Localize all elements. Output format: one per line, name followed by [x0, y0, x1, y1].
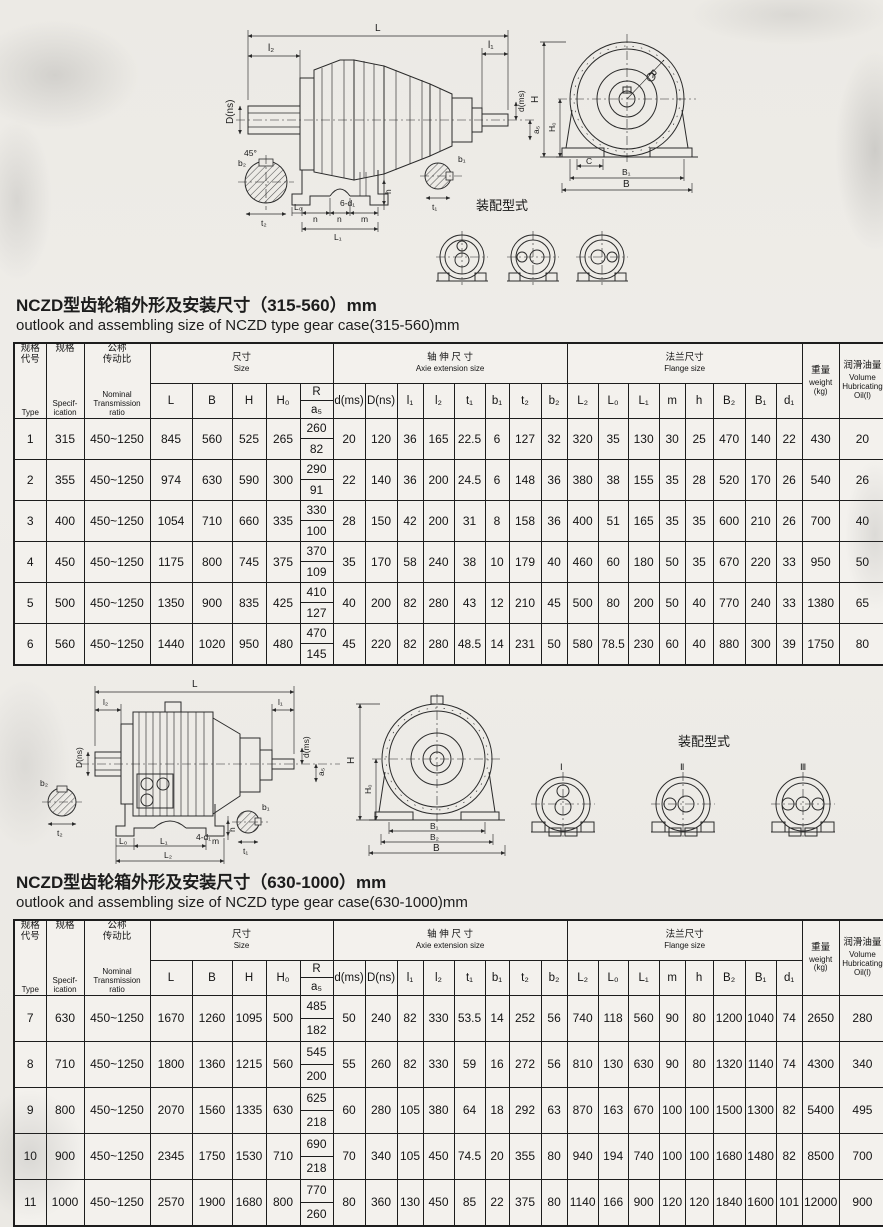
- cell-B1: 300: [745, 623, 776, 665]
- cell-L2: 320: [567, 418, 598, 459]
- dim-n: n: [313, 214, 318, 224]
- cell-B1: 240: [745, 582, 776, 623]
- cell-a5: 91: [301, 480, 333, 500]
- col-spec-header: 规格Specif- ication: [46, 920, 84, 996]
- group-axle-header-en: Axie extension size: [334, 365, 567, 374]
- dim-l2: l₂: [103, 697, 108, 707]
- cell-spec: 450: [46, 541, 84, 582]
- output-shaft-section: b₁ t₁: [232, 802, 270, 856]
- header-group-row: 规格 代号Type规格Specif- ication公称 传动比Nominal …: [14, 920, 883, 961]
- col-symbol-header: m: [659, 383, 685, 418]
- col-oil-header-zh: 润滑油量: [840, 361, 883, 372]
- cell-B: 900: [192, 582, 232, 623]
- assembly-variant-numeral: Ⅰ: [560, 762, 563, 772]
- dim-t1: t₁: [243, 846, 248, 856]
- cell-type: 11: [14, 1179, 46, 1226]
- cell-l1: 105: [397, 1133, 423, 1179]
- cell-H0: 480: [266, 623, 300, 665]
- cell-R-a5: 410127: [300, 582, 333, 623]
- cell-a5: 100: [301, 521, 333, 541]
- cell-L2: 810: [567, 1041, 598, 1087]
- cell-R: 770: [301, 1179, 333, 1203]
- cell-m: 90: [659, 1041, 685, 1087]
- cell-b2: 80: [541, 1179, 567, 1226]
- cell-L: 1800: [150, 1041, 192, 1087]
- col-symbol-header: L₂: [567, 960, 598, 995]
- cell-type: 1: [14, 418, 46, 459]
- cell-m: 100: [659, 1087, 685, 1133]
- spec-table-315-560: 规格 代号Type规格Specif- ication公称 传动比Nominal …: [13, 342, 883, 666]
- cell-spec: 630: [46, 995, 84, 1041]
- col-spec-header-en: Specif- ication: [47, 400, 84, 418]
- cell-R-a5: 545200: [300, 1041, 333, 1087]
- col-symbol-header: H₀: [266, 960, 300, 995]
- cell-weight: 4300: [802, 1041, 839, 1087]
- cell-weight: 700: [802, 500, 839, 541]
- col-ratio-header: 公称 传动比Nominal Transmission ratio: [84, 920, 150, 996]
- col-weight-header: 重量weight (kg): [802, 343, 839, 419]
- cell-b1: 6: [485, 418, 509, 459]
- cell-oil: 495: [839, 1087, 883, 1133]
- dim-n: n: [337, 214, 342, 224]
- cell-m: 30: [659, 418, 685, 459]
- col-spec-header-en: Specif- ication: [47, 977, 84, 995]
- cell-h: 25: [685, 418, 713, 459]
- col-symbol-header: L₀: [598, 383, 628, 418]
- assembly-variant-diagram: Ⅲ: [771, 762, 835, 838]
- cell-ratio: 450~1250: [84, 582, 150, 623]
- col-symbol-header: d₁: [776, 960, 802, 995]
- col-ratio-header-en: Nominal Transmission ratio: [85, 391, 150, 418]
- section2-title-en: outlook and assembling size of NCZD type…: [16, 893, 883, 913]
- col-ratio-header: 公称 传动比Nominal Transmission ratio: [84, 343, 150, 419]
- cell-b2: 40: [541, 541, 567, 582]
- col-symbol-header: L: [150, 383, 192, 418]
- cell-L0: 78.5: [598, 623, 628, 665]
- cell-L1: 180: [628, 541, 659, 582]
- cell-L: 2345: [150, 1133, 192, 1179]
- input-shaft-section: b₂ 45° t₂: [238, 148, 294, 228]
- cell-d1: 26: [776, 500, 802, 541]
- col-symbol-header: h: [685, 383, 713, 418]
- group-size-header-en: Size: [151, 365, 333, 374]
- cell-d1: 33: [776, 582, 802, 623]
- cell-d1: 39: [776, 623, 802, 665]
- cell-d1: 74: [776, 995, 802, 1041]
- group-flange-header-en: Flange size: [568, 365, 802, 374]
- cell-m: 35: [659, 500, 685, 541]
- spec-row: 111000450~125025701900168080077026080360…: [14, 1179, 883, 1226]
- cell-H0: 560: [266, 1041, 300, 1087]
- cell-R: 330: [301, 500, 333, 521]
- dim-b2: b₂: [238, 158, 246, 168]
- dim-t2: t₂: [261, 218, 267, 228]
- cell-t2: 210: [509, 582, 541, 623]
- cell-B2: 1840: [713, 1179, 745, 1226]
- cell-type: 2: [14, 459, 46, 500]
- cell-weight: 430: [802, 418, 839, 459]
- cell-D-ns: 340: [365, 1133, 397, 1179]
- cell-type: 7: [14, 995, 46, 1041]
- cell-L2: 870: [567, 1087, 598, 1133]
- cell-L2: 580: [567, 623, 598, 665]
- cell-l1: 82: [397, 582, 423, 623]
- cell-H0: 800: [266, 1179, 300, 1226]
- cell-d1: 101: [776, 1179, 802, 1226]
- col-symbol-header: L₁: [628, 960, 659, 995]
- cell-D-ns: 260: [365, 1041, 397, 1087]
- cell-L2: 740: [567, 995, 598, 1041]
- section2-title-zh: NCZD型齿轮箱外形及安装尺寸（630-1000）mm: [16, 872, 883, 893]
- col-R-header: R: [301, 960, 333, 978]
- dim-bolt-holes: 6-d₁: [340, 198, 355, 208]
- side-view-dimensions: L l₂ l₁ D(ns) d(ms) a₅ h L₀ L₁ 4-d₁ m L₂: [74, 679, 326, 864]
- cell-ratio: 450~1250: [84, 995, 150, 1041]
- cell-l2: 380: [423, 1087, 454, 1133]
- cell-d1: 33: [776, 541, 802, 582]
- cell-B: 1750: [192, 1133, 232, 1179]
- col-type-header-en: Type: [15, 409, 46, 418]
- dim-bolt-holes: 4-d₁: [196, 832, 211, 842]
- cell-d1: 82: [776, 1133, 802, 1179]
- cell-B: 710: [192, 500, 232, 541]
- cell-b2: 36: [541, 459, 567, 500]
- cell-b1: 6: [485, 459, 509, 500]
- cell-B2: 1200: [713, 995, 745, 1041]
- assembly-variant-numeral: Ⅲ: [800, 762, 806, 772]
- cell-B: 560: [192, 418, 232, 459]
- cell-B2: 470: [713, 418, 745, 459]
- group-axle-header: 轴 伸 尺 寸Axie extension size: [333, 343, 567, 384]
- dim-Dns: D(ns): [225, 100, 236, 124]
- cell-h: 40: [685, 582, 713, 623]
- cell-oil: 700: [839, 1133, 883, 1179]
- cell-L0: 194: [598, 1133, 628, 1179]
- cell-oil: 26: [839, 459, 883, 500]
- col-weight-header-zh: 重量: [803, 366, 839, 377]
- cell-weight: 1380: [802, 582, 839, 623]
- col-symbol-header: d(ms): [333, 383, 365, 418]
- cell-weight: 5400: [802, 1087, 839, 1133]
- cell-R-a5: 470145: [300, 623, 333, 665]
- cell-L: 974: [150, 459, 192, 500]
- cell-m: 120: [659, 1179, 685, 1226]
- cell-R-a5: 26082: [300, 418, 333, 459]
- cell-oil: 40: [839, 500, 883, 541]
- cell-t1: 31: [454, 500, 485, 541]
- cell-L2: 460: [567, 541, 598, 582]
- cell-b1: 22: [485, 1179, 509, 1226]
- cell-B2: 600: [713, 500, 745, 541]
- cell-L1: 130: [628, 418, 659, 459]
- cell-l2: 330: [423, 995, 454, 1041]
- col-symbol-header: b₁: [485, 383, 509, 418]
- cell-t1: 22.5: [454, 418, 485, 459]
- cell-a5: 109: [301, 562, 333, 582]
- assembly-variant-diagram: Ⅱ: [651, 762, 715, 838]
- cell-type: 9: [14, 1087, 46, 1133]
- dim-m: m: [212, 836, 219, 846]
- cell-R: 290: [301, 459, 333, 480]
- col-type-header-en: Type: [15, 986, 46, 995]
- dim-l1: l₁: [488, 40, 494, 51]
- cell-t2: 127: [509, 418, 541, 459]
- col-weight-header: 重量weight (kg): [802, 920, 839, 996]
- dim-dms: d(ms): [516, 90, 526, 112]
- cell-L: 1054: [150, 500, 192, 541]
- cell-D-ns: 280: [365, 1087, 397, 1133]
- col-symbol-header: b₁: [485, 960, 509, 995]
- cell-B: 1900: [192, 1179, 232, 1226]
- spec-row: 4450450~12501175800745375370109351705824…: [14, 541, 883, 582]
- col-oil-header-zh: 润滑油量: [840, 938, 883, 949]
- col-symbol-header: t₁: [454, 383, 485, 418]
- header-group-row: 规格 代号Type规格Specif- ication公称 传动比Nominal …: [14, 343, 883, 384]
- cell-B: 630: [192, 459, 232, 500]
- cell-B1: 1140: [745, 1041, 776, 1087]
- section1-title-en: outlook and assembling size of NCZD type…: [16, 316, 883, 336]
- col-symbol-header: B₂: [713, 383, 745, 418]
- col-oil-header: 润滑油量Volume Hubricating Oil(l): [839, 343, 883, 419]
- cell-D-ns: 240: [365, 995, 397, 1041]
- dim-Dns: D(ns): [74, 747, 84, 768]
- group-size-header-en: Size: [151, 942, 333, 951]
- cell-m: 60: [659, 623, 685, 665]
- cell-l1: 58: [397, 541, 423, 582]
- cell-weight: 8500: [802, 1133, 839, 1179]
- cell-L0: 163: [598, 1087, 628, 1133]
- cell-R: 545: [301, 1041, 333, 1065]
- col-symbol-header: m: [659, 960, 685, 995]
- dim-B: B: [433, 843, 440, 854]
- cell-t2: 158: [509, 500, 541, 541]
- col-symbol-header: D(ns): [365, 960, 397, 995]
- cell-H: 1335: [232, 1087, 266, 1133]
- col-symbol-header: b₂: [541, 960, 567, 995]
- cell-t2: 292: [509, 1087, 541, 1133]
- col-symbol-header: t₁: [454, 960, 485, 995]
- col-symbol-header: L₂: [567, 383, 598, 418]
- cell-L0: 51: [598, 500, 628, 541]
- cell-d1: 82: [776, 1087, 802, 1133]
- col-symbol-header: H₀: [266, 383, 300, 418]
- cell-H: 745: [232, 541, 266, 582]
- cell-R-a5: 485182: [300, 995, 333, 1041]
- cell-B: 1560: [192, 1087, 232, 1133]
- col-ratio-header-en: Nominal Transmission ratio: [85, 968, 150, 995]
- cell-b2: 50: [541, 623, 567, 665]
- dim-L1: L₁: [160, 836, 168, 846]
- cell-L0: 38: [598, 459, 628, 500]
- cell-spec: 315: [46, 418, 84, 459]
- cell-R: 370: [301, 541, 333, 562]
- col-spec-header-zh: 规格: [47, 344, 84, 355]
- cell-h: 80: [685, 995, 713, 1041]
- dim-b1: b₁: [262, 802, 270, 812]
- col-type-header: 规格 代号Type: [14, 920, 46, 996]
- cell-R: 260: [301, 418, 333, 439]
- cell-weight: 2650: [802, 995, 839, 1041]
- cell-m: 35: [659, 459, 685, 500]
- cell-d1: 74: [776, 1041, 802, 1087]
- col-oil-header: 润滑油量Volume Hubricating Oil(l): [839, 920, 883, 996]
- cell-t2: 179: [509, 541, 541, 582]
- cell-h: 35: [685, 541, 713, 582]
- cell-L2: 500: [567, 582, 598, 623]
- cell-H0: 425: [266, 582, 300, 623]
- cell-R-a5: 625218: [300, 1087, 333, 1133]
- cell-h: 100: [685, 1133, 713, 1179]
- cell-l1: 82: [397, 1041, 423, 1087]
- col-ratio-header-zh: 公称 传动比: [85, 921, 150, 943]
- dim-L: L: [192, 679, 198, 690]
- group-flange-header: 法兰尺寸Flange size: [567, 343, 802, 384]
- section1-title-zh: NCZD型齿轮箱外形及安装尺寸（315-560）mm: [16, 295, 883, 316]
- output-shaft-section: b₁ t₁: [420, 154, 466, 212]
- col-symbol-header: t₂: [509, 383, 541, 418]
- cell-b1: 8: [485, 500, 509, 541]
- cell-d-ms: 45: [333, 623, 365, 665]
- dim-H0: H₀: [363, 784, 373, 794]
- col-type-header-zh: 规格 代号: [15, 344, 46, 366]
- cell-l2: 280: [423, 582, 454, 623]
- group-flange-header-zh: 法兰尺寸: [568, 930, 802, 941]
- cell-L1: 155: [628, 459, 659, 500]
- cell-type: 4: [14, 541, 46, 582]
- cell-l1: 105: [397, 1087, 423, 1133]
- col-symbol-header: B₁: [745, 960, 776, 995]
- cell-H: 1530: [232, 1133, 266, 1179]
- cell-h: 80: [685, 1041, 713, 1087]
- cell-B1: 1300: [745, 1087, 776, 1133]
- cell-t1: 38: [454, 541, 485, 582]
- cell-H0: 300: [266, 459, 300, 500]
- col-spec-header-zh: 规格: [47, 921, 84, 932]
- cell-t1: 64: [454, 1087, 485, 1133]
- cell-D-ns: 220: [365, 623, 397, 665]
- cell-H: 1095: [232, 995, 266, 1041]
- cell-t2: 148: [509, 459, 541, 500]
- cell-spec: 900: [46, 1133, 84, 1179]
- cell-L: 1175: [150, 541, 192, 582]
- cell-B2: 1320: [713, 1041, 745, 1087]
- cell-L: 1350: [150, 582, 192, 623]
- cell-oil: 340: [839, 1041, 883, 1087]
- cell-R: 410: [301, 582, 333, 603]
- cell-d-ms: 40: [333, 582, 365, 623]
- cell-D-ns: 120: [365, 418, 397, 459]
- col-symbol-header: B: [192, 960, 232, 995]
- cell-ratio: 450~1250: [84, 418, 150, 459]
- cell-L1: 230: [628, 623, 659, 665]
- cell-L: 2070: [150, 1087, 192, 1133]
- col-weight-header-en: weight (kg): [803, 379, 839, 397]
- col-symbol-header: B₂: [713, 960, 745, 995]
- cell-D-ns: 200: [365, 582, 397, 623]
- cell-h: 35: [685, 500, 713, 541]
- cell-l1: 36: [397, 418, 423, 459]
- cell-t1: 74.5: [454, 1133, 485, 1179]
- col-symbol-header: B₁: [745, 383, 776, 418]
- cell-R-a5: 370109: [300, 541, 333, 582]
- assembly-variant-numeral: Ⅱ: [680, 762, 684, 772]
- spec-row: 6560450~12501440102095048047014545220822…: [14, 623, 883, 665]
- spec-row: 3400450~12501054710660335330100281504220…: [14, 500, 883, 541]
- cell-d-ms: 55: [333, 1041, 365, 1087]
- col-R-header: R: [301, 383, 333, 401]
- cell-B2: 520: [713, 459, 745, 500]
- cell-B1: 210: [745, 500, 776, 541]
- col-symbol-header: l₁: [397, 960, 423, 995]
- assembly-type-label: 装配型式: [476, 198, 528, 213]
- col-weight-header-en: weight (kg): [803, 956, 839, 974]
- cell-t2: 231: [509, 623, 541, 665]
- cell-H: 1680: [232, 1179, 266, 1226]
- cell-ratio: 450~1250: [84, 459, 150, 500]
- col-symbol-header: l₁: [397, 383, 423, 418]
- cell-spec: 355: [46, 459, 84, 500]
- dim-B2: B₂: [430, 832, 439, 842]
- cell-weight: 950: [802, 541, 839, 582]
- cell-L0: 118: [598, 995, 628, 1041]
- spec-row: 10900450~1250234517501530710690218703401…: [14, 1133, 883, 1179]
- cell-l2: 240: [423, 541, 454, 582]
- cell-weight: 1750: [802, 623, 839, 665]
- cell-B2: 1680: [713, 1133, 745, 1179]
- cell-H: 835: [232, 582, 266, 623]
- cell-D-ns: 360: [365, 1179, 397, 1226]
- dim-a5: a₅: [531, 126, 541, 134]
- group-flange-header: 法兰尺寸Flange size: [567, 920, 802, 961]
- cell-B1: 140: [745, 418, 776, 459]
- col-symbol-header: d₁: [776, 383, 802, 418]
- col-symbol-header: l₂: [423, 960, 454, 995]
- cell-l1: 130: [397, 1179, 423, 1226]
- assembly-variant-diagram: [507, 231, 559, 285]
- cell-H0: 375: [266, 541, 300, 582]
- cell-oil: 65: [839, 582, 883, 623]
- col-oil-header-en: Volume Hubricating Oil(l): [840, 951, 883, 978]
- cell-a5: 145: [301, 644, 333, 664]
- cell-l2: 330: [423, 1041, 454, 1087]
- cell-D-ns: 170: [365, 541, 397, 582]
- cell-l2: 280: [423, 623, 454, 665]
- cell-B: 800: [192, 541, 232, 582]
- cell-L1: 670: [628, 1087, 659, 1133]
- cell-t1: 43: [454, 582, 485, 623]
- assembly-variant-diagram: [576, 231, 628, 285]
- cell-R-a5: 770260: [300, 1179, 333, 1226]
- cell-m: 90: [659, 995, 685, 1041]
- col-type-header: 规格 代号Type: [14, 343, 46, 419]
- col-symbol-header: D(ns): [365, 383, 397, 418]
- col-oil-header-en: Volume Hubricating Oil(l): [840, 374, 883, 401]
- spec-row: 7630450~12501670126010955004851825024082…: [14, 995, 883, 1041]
- cell-b1: 14: [485, 995, 509, 1041]
- cell-B2: 670: [713, 541, 745, 582]
- cell-B1: 1040: [745, 995, 776, 1041]
- dim-b2: b₂: [40, 778, 48, 788]
- cell-a5: 82: [301, 439, 333, 459]
- front-view-dimensions: H H₀ R C B₁ B: [530, 42, 692, 193]
- cell-type: 8: [14, 1041, 46, 1087]
- cell-b2: 45: [541, 582, 567, 623]
- cell-weight: 12000: [802, 1179, 839, 1226]
- cell-L: 1440: [150, 623, 192, 665]
- front-view-gearcase: [369, 694, 505, 822]
- cell-m: 50: [659, 541, 685, 582]
- cell-L1: 560: [628, 995, 659, 1041]
